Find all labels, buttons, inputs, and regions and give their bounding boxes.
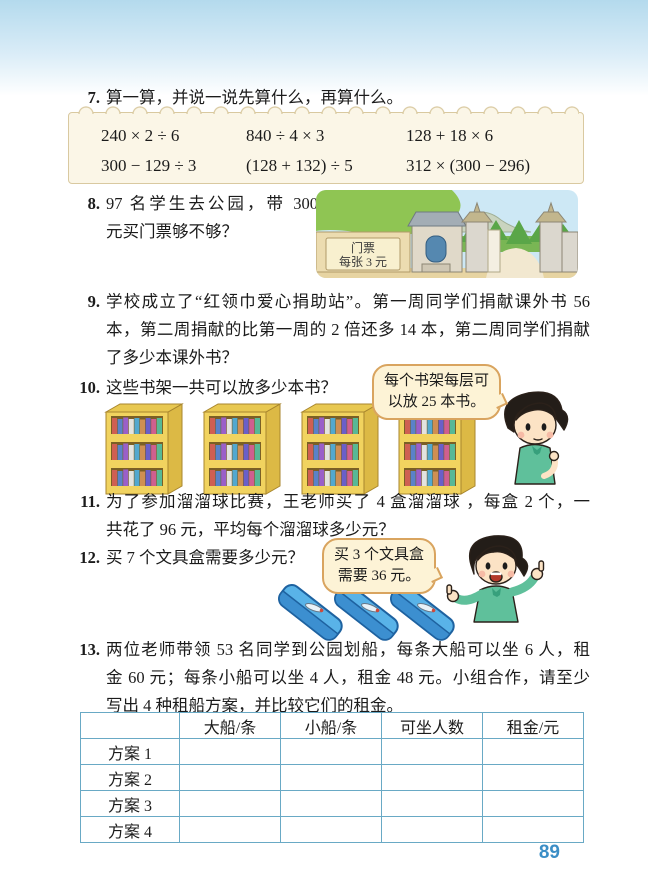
table-row: 方案 3 <box>81 791 584 817</box>
exercise-13: 13. 两位老师带领 53 名同学到公园划船，每条大船可以坐 6 人，租 金 6… <box>70 636 590 720</box>
text-line: 两位老师带领 53 名同学到公园划船，每条大船可以坐 6 人，租 <box>106 636 590 664</box>
exercise-number: 12. <box>70 544 106 572</box>
table-cell <box>281 739 382 765</box>
bubble-line: 需要 36 元。 <box>334 566 424 587</box>
table-header-empty <box>81 713 180 739</box>
exercise-number: 11. <box>70 488 106 544</box>
table-header-row: 大船/条 小船/条 可坐人数 租金/元 <box>81 713 584 739</box>
row-label: 方案 2 <box>81 765 180 791</box>
text-line: 元买门票够不够？ <box>106 218 318 246</box>
speech-bubble-shelf: 每个书架每层可 以放 25 本书。 <box>372 364 501 420</box>
expression: 840 ÷ 4 × 3 <box>246 125 406 147</box>
table-cell <box>483 791 584 817</box>
table-cell <box>281 765 382 791</box>
exercise-number: 10. <box>70 374 106 402</box>
text-line: 为了参加溜溜球比赛，王老师买了 4 盒溜溜球 ，每盒 2 个，一 <box>106 488 590 516</box>
expression: 312 × (300 − 296) <box>406 155 583 177</box>
table-cell <box>180 791 281 817</box>
table-row: 方案 2 <box>81 765 584 791</box>
table-cell <box>281 791 382 817</box>
row-label: 方案 3 <box>81 791 180 817</box>
table-header-seats: 可坐人数 <box>382 713 483 739</box>
table-cell <box>180 817 281 843</box>
table-cell <box>483 817 584 843</box>
page-top-gradient <box>0 0 648 96</box>
table-cell <box>382 817 483 843</box>
text-line: 97 名学生去公园，带 300 <box>106 190 318 218</box>
text-line: 学校成立了“红领巾爱心捐助站”。第一周同学们捐献课外书 56 <box>106 288 590 316</box>
table-row: 方案 1 <box>81 739 584 765</box>
park-gate-illustration: 门票 每张 3 元 <box>316 190 578 278</box>
bubble-line: 以放 25 本书。 <box>384 392 489 413</box>
table-cell <box>483 765 584 791</box>
page-number: 89 <box>500 842 560 864</box>
boat-plan-table: 大船/条 小船/条 可坐人数 租金/元 方案 1 方案 2 方案 3 <box>80 712 584 843</box>
table-cell <box>483 739 584 765</box>
exercise-8: 8. 97 名学生去公园，带 300 元买门票够不够？ <box>70 190 318 246</box>
speech-bubble-pencilbox: 买 3 个文具盒 需要 36 元。 <box>322 538 436 594</box>
text-line: 金 60 元；每条小船可以坐 4 人，租金 48 元。小组合作，请至少 <box>106 664 590 692</box>
table-header-rent: 租金/元 <box>483 713 584 739</box>
scallop-edge-decoration <box>73 105 579 114</box>
table-header-big-boat: 大船/条 <box>180 713 281 739</box>
ticket-sign-line1: 门票 <box>351 240 375 255</box>
exercise-9: 9. 学校成立了“红领巾爱心捐助站”。第一周同学们捐献课外书 56 本，第二周捐… <box>70 288 590 372</box>
table-cell <box>180 765 281 791</box>
table-cell <box>382 765 483 791</box>
textbook-page: 7. 算一算，并说一说先算什么，再算什么。 240 × 2 ÷ 6 840 ÷ … <box>0 0 648 894</box>
exercise-number: 9. <box>70 288 106 372</box>
row-label: 方案 4 <box>81 817 180 843</box>
expression-panel: 240 × 2 ÷ 6 840 ÷ 4 × 3 128 + 18 × 6 300… <box>68 112 584 184</box>
expression: (128 + 132) ÷ 5 <box>246 155 406 177</box>
table-row: 方案 4 <box>81 817 584 843</box>
table-cell <box>382 791 483 817</box>
table-cell <box>180 739 281 765</box>
table-cell <box>382 739 483 765</box>
text-line: 了多少本课外书？ <box>106 344 590 372</box>
bubble-line: 买 3 个文具盒 <box>334 545 424 566</box>
exercise-number: 13. <box>70 636 106 720</box>
table-cell <box>281 817 382 843</box>
expression: 300 − 129 ÷ 3 <box>101 155 246 177</box>
bubble-line: 每个书架每层可 <box>384 371 489 392</box>
expression: 240 × 2 ÷ 6 <box>101 125 246 147</box>
expression: 128 + 18 × 6 <box>406 125 583 147</box>
table-header-small-boat: 小船/条 <box>281 713 382 739</box>
exercise-number: 8. <box>70 190 106 246</box>
text-line: 本，第二周捐献的比第一周的 2 倍还多 14 本，第二周同学们捐献 <box>106 316 590 344</box>
ticket-sign-line2: 每张 3 元 <box>339 254 387 269</box>
row-label: 方案 1 <box>81 739 180 765</box>
